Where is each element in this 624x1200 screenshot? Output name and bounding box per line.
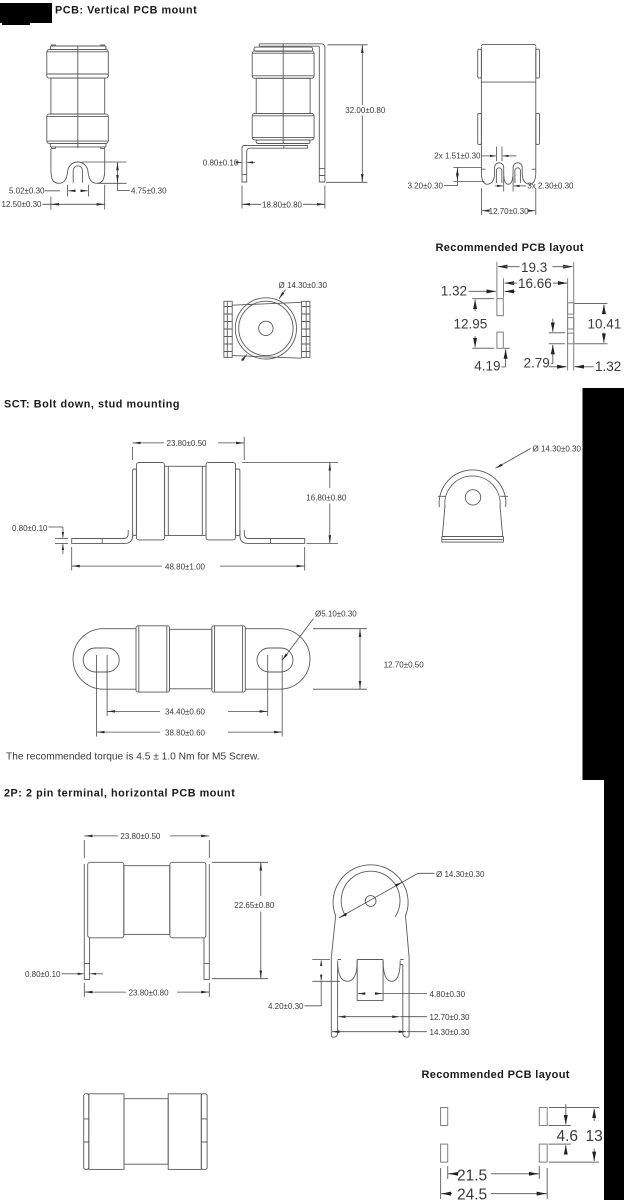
svg-text:38.80±0.60: 38.80±0.60	[165, 728, 206, 737]
svg-text:12.95: 12.95	[454, 317, 488, 332]
svg-text:4.80±0.30: 4.80±0.30	[430, 990, 466, 999]
svg-text:Ø 14.30±0.30: Ø 14.30±0.30	[279, 281, 328, 290]
svg-text:4.6: 4.6	[557, 1128, 579, 1145]
svg-text:4.75±0.30: 4.75±0.30	[131, 186, 167, 195]
svg-text:3x 2.30±0.30: 3x 2.30±0.30	[527, 182, 574, 191]
svg-text:1.32: 1.32	[441, 284, 467, 299]
svg-text:22.65±0.80: 22.65±0.80	[234, 901, 275, 910]
svg-text:SCT: Bolt down, stud mounting: SCT: Bolt down, stud mounting	[4, 399, 180, 411]
svg-text:16.80±0.80: 16.80±0.80	[306, 493, 347, 502]
svg-text:14.30±0.30: 14.30±0.30	[430, 1028, 471, 1037]
svg-text:3.20±0.30: 3.20±0.30	[407, 181, 443, 190]
svg-text:4.20±0.30: 4.20±0.30	[268, 1002, 304, 1011]
svg-text:Recommended PCB layout: Recommended PCB layout	[422, 1069, 570, 1081]
svg-text:24.5: 24.5	[457, 1187, 487, 1200]
svg-text:18.80±0.80: 18.80±0.80	[262, 200, 303, 209]
svg-text:32.00±0.80: 32.00±0.80	[345, 106, 386, 115]
svg-text:4.19: 4.19	[474, 359, 500, 374]
svg-text:1.32: 1.32	[595, 359, 621, 374]
svg-text:Ø 14.30±0.30: Ø 14.30±0.30	[533, 444, 582, 453]
svg-text:19.3: 19.3	[521, 260, 547, 275]
svg-text:0.80±0.10: 0.80±0.10	[203, 159, 239, 168]
svg-text:Ø5.10±0.30: Ø5.10±0.30	[315, 609, 357, 618]
svg-text:21.5: 21.5	[457, 1168, 487, 1185]
svg-text:5.02±0.30: 5.02±0.30	[9, 186, 45, 195]
svg-text:2.79: 2.79	[524, 355, 550, 370]
svg-text:0.80±0.10: 0.80±0.10	[12, 524, 48, 533]
svg-text:12.70±0.50: 12.70±0.50	[384, 660, 425, 669]
svg-text:12.70±0.30: 12.70±0.30	[489, 207, 530, 216]
svg-text:23.80±0.80: 23.80±0.80	[129, 988, 170, 997]
svg-text:Ø 14.30±0.30: Ø 14.30±0.30	[436, 870, 485, 879]
svg-text:13: 13	[586, 1128, 603, 1145]
svg-text:Recommended PCB layout: Recommended PCB layout	[436, 242, 584, 254]
svg-text:48.80±1.00: 48.80±1.00	[165, 562, 206, 571]
svg-text:23.80±0.50: 23.80±0.50	[167, 439, 208, 448]
svg-text:2x 1.51±0.30: 2x 1.51±0.30	[434, 152, 481, 161]
svg-text:PCB: Vertical PCB mount: PCB: Vertical PCB mount	[55, 5, 197, 17]
svg-text:2P: 2 pin terminal, horizontal: 2P: 2 pin terminal, horizontal PCB mount	[4, 788, 235, 800]
svg-text:The recommended torque is 4.5: The recommended torque is 4.5 ± 1.0 Nm f…	[6, 752, 260, 763]
svg-text:12.70±0.30: 12.70±0.30	[430, 1013, 471, 1022]
svg-text:16.66: 16.66	[518, 276, 552, 291]
svg-text:0.80±0.10: 0.80±0.10	[25, 970, 61, 979]
svg-text:34.40±0.60: 34.40±0.60	[165, 708, 206, 717]
svg-text:23.80±0.50: 23.80±0.50	[120, 832, 161, 841]
svg-text:12.50±0.30: 12.50±0.30	[2, 200, 43, 209]
svg-text:10.41: 10.41	[588, 317, 622, 332]
